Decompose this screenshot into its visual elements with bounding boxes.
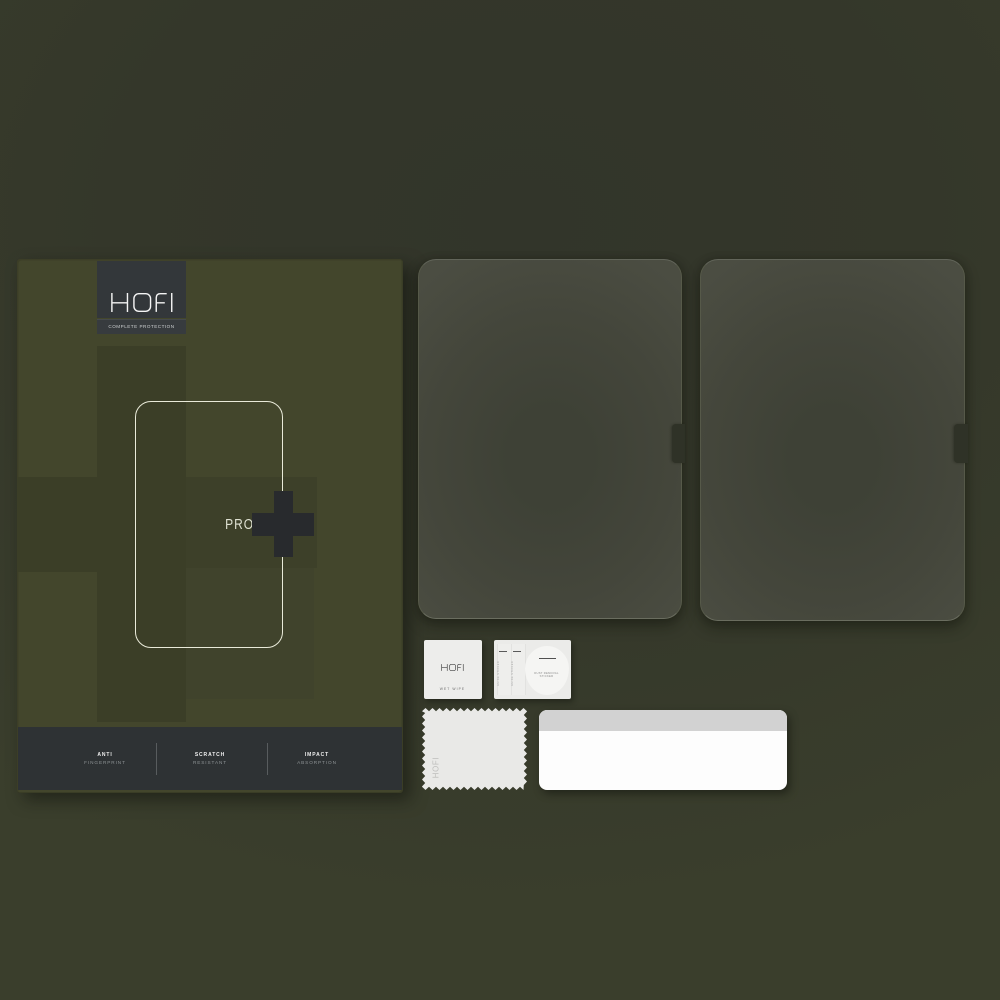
svg-text:HOFI: HOFI	[431, 756, 440, 777]
